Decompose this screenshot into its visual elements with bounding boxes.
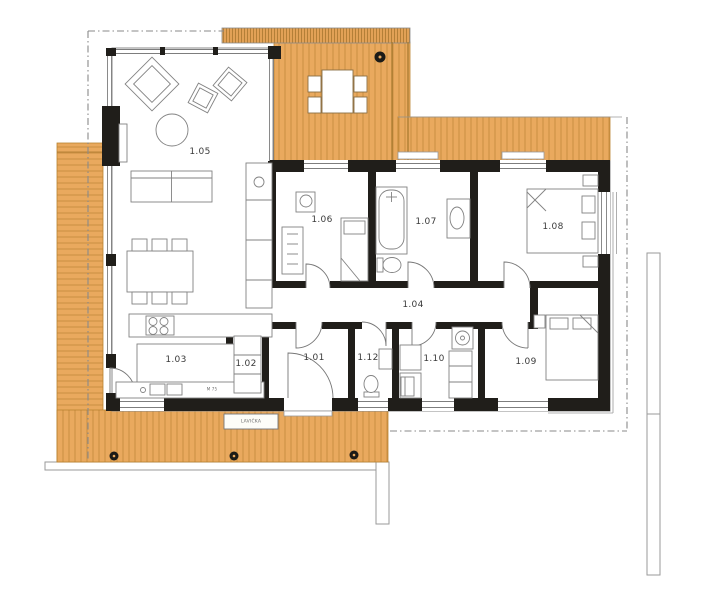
bench-outline [224, 414, 278, 429]
kitchen-counter-north [129, 314, 272, 337]
pantry-shelf [234, 336, 261, 393]
shelving [449, 351, 472, 398]
floor-plan-page: 1.011.021.031.041.051.061.071.081.091.10… [0, 0, 714, 600]
washing-machine [452, 327, 473, 349]
nightstand [583, 256, 598, 267]
double-bed [527, 189, 598, 253]
deck-table-set [308, 70, 367, 113]
toilet [377, 258, 401, 273]
nightstand [534, 315, 545, 328]
nightstand [583, 175, 598, 186]
dining-table-set [127, 239, 193, 304]
single-bed [341, 218, 368, 281]
wc-sink [379, 349, 392, 369]
boiler [401, 377, 414, 396]
double-bed-south [546, 315, 598, 380]
cabinet [400, 345, 421, 370]
bathroom-sink [447, 199, 470, 238]
wardrobe [282, 227, 303, 274]
sofa [131, 171, 212, 202]
wc-toilet [364, 376, 379, 398]
tv-sideboard [119, 124, 127, 162]
kitchen-counter-east [246, 163, 272, 308]
bathtub [376, 187, 407, 254]
floor-plan-drawing [0, 0, 714, 600]
